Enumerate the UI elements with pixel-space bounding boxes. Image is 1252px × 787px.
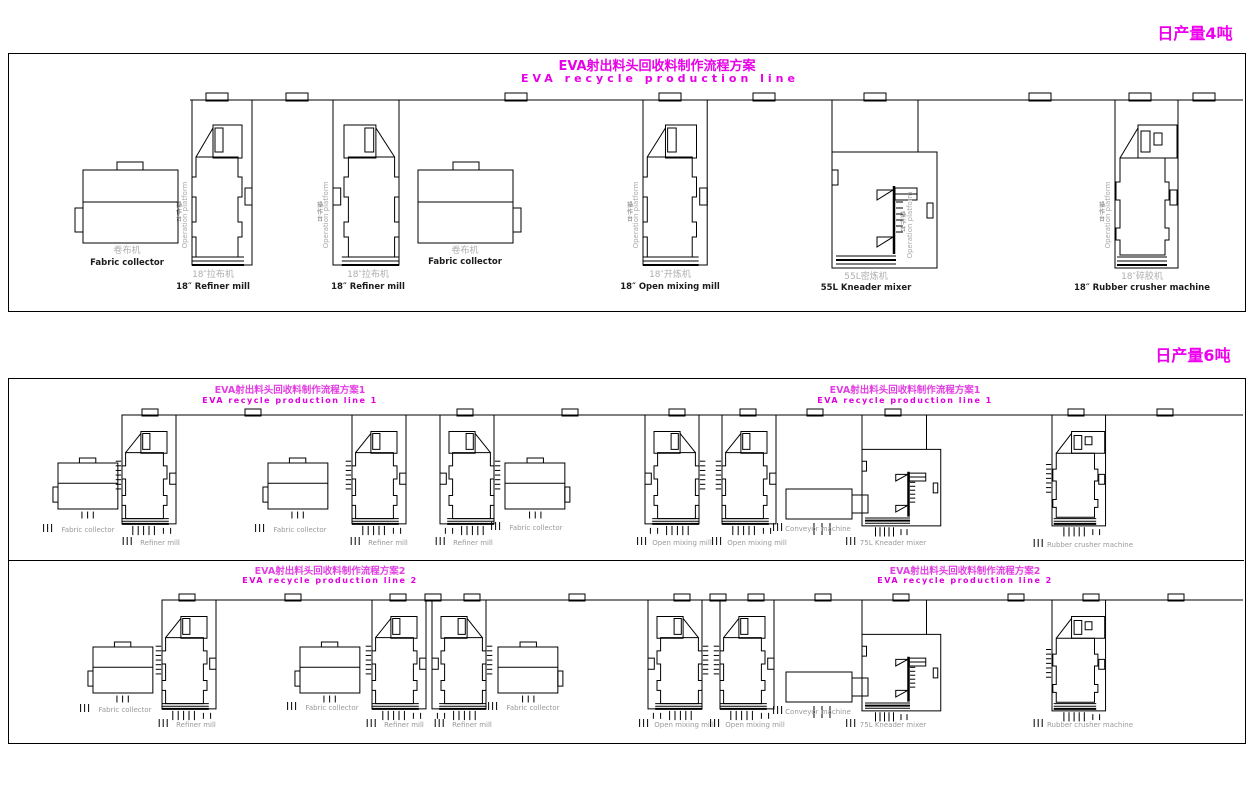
machine-mill-drawing <box>432 600 492 720</box>
machine-label-en: Rubber crusher machine <box>1047 541 1133 549</box>
operation-platform-label-en: Operation platform <box>322 181 330 248</box>
machine-label-en: Refiner mill <box>140 539 180 547</box>
machine-label-zh: 18″开炼机 <box>649 268 691 280</box>
machine-fabric-collector-drawing <box>53 458 118 518</box>
machine-mill-drawing <box>716 415 776 535</box>
machine-label-en: Fabric collector <box>98 706 151 714</box>
machine-label-zh: 18″拉布机 <box>347 268 389 280</box>
machine-label-en: Fabric collector <box>305 704 358 712</box>
machine-crusher-drawing <box>1046 600 1106 721</box>
machine-mill-drawing <box>648 600 708 720</box>
machine-label-zh: 18″拉布机 <box>192 268 234 280</box>
machine-label-en: Conveyor machine <box>785 708 851 716</box>
machine-label-en: Open mixing mill <box>725 721 785 729</box>
cad-drawing-canvas: 日产量4吨 EVA射出料头回收料制作流程方案 EVA recycle produ… <box>0 0 1252 787</box>
machine-crusher-drawing <box>1046 415 1106 536</box>
operation-platform-label-zh: 操作台 <box>627 201 633 223</box>
machine-label-en: 55L Kneader mixer <box>821 283 912 293</box>
machine-label-en: Fabric collector <box>506 704 559 712</box>
machine-mill-drawing <box>366 600 426 720</box>
machine-fabric-collector-drawing <box>418 162 521 243</box>
machine-label-en: Fabric collector <box>273 526 326 534</box>
operation-platform-label-zh: 操作台 <box>1099 201 1105 223</box>
machine-label-en: 18″ Open mixing mill <box>620 282 720 292</box>
machine-label-en: Refiner mill <box>384 721 424 729</box>
operation-platform-label-en: Operation platform <box>181 181 189 248</box>
machine-label-en: 18″ Refiner mill <box>331 282 405 292</box>
operation-platform-label-en: Operation platform <box>632 181 640 248</box>
machine-label-en: Refiner mill <box>453 539 493 547</box>
operation-platform-label-en: Operation platform <box>1104 181 1112 248</box>
machine-mill-drawing <box>333 100 399 265</box>
machine-kneader-drawing <box>862 415 941 536</box>
machine-label-en: Open mixing mill <box>727 539 787 547</box>
machine-crusher-drawing <box>1115 100 1178 268</box>
machine-mill-drawing <box>116 415 176 535</box>
machine-mill-drawing <box>346 415 406 535</box>
machine-label-en: Refiner mill <box>176 721 216 729</box>
machine-label-en: 75L Kneader mixer <box>860 721 927 729</box>
machine-label-en: Open mixing mill <box>652 539 712 547</box>
machine-label-zh: 卷布机 <box>451 244 478 256</box>
machine-mill-drawing <box>645 415 705 535</box>
operation-platform-label-en: Operation platform <box>906 191 914 258</box>
machine-fabric-collector-drawing <box>75 162 178 243</box>
machine-mill-drawing <box>440 415 500 535</box>
machine-label-zh: 55L密炼机 <box>844 270 887 282</box>
machine-label-en: Refiner mill <box>452 721 492 729</box>
machine-mill-drawing <box>192 100 252 265</box>
machines-diagram: 卷布机Fabric collector18″拉布机18″ Refiner mil… <box>0 0 1252 787</box>
machine-mill-drawing <box>714 600 774 720</box>
machine-fabric-collector-drawing <box>498 642 563 702</box>
machine-label-en: 75L Kneader mixer <box>860 539 927 547</box>
machine-label-en: Fabric collector <box>509 524 562 532</box>
machine-label-zh: 18″碎胶机 <box>1121 270 1163 282</box>
operation-platform-label-zh: 操作台 <box>176 201 182 223</box>
machine-label-en: Rubber crusher machine <box>1047 721 1133 729</box>
machine-label-en: Conveyor machine <box>785 525 851 533</box>
machine-label-en: Fabric collector <box>428 257 503 267</box>
machine-label-en: Fabric collector <box>61 526 114 534</box>
operation-platform-label-zh: 操作台 <box>317 201 323 223</box>
machine-label-en: Fabric collector <box>90 258 165 268</box>
machine-label-en: Open mixing mill <box>654 721 714 729</box>
machine-label-en: 18″ Rubber crusher machine <box>1074 283 1210 293</box>
machine-label-en: 18″ Refiner mill <box>176 282 250 292</box>
machine-kneader-drawing <box>832 100 937 268</box>
machine-mill-drawing <box>156 600 216 720</box>
machine-fabric-collector-drawing <box>295 642 360 702</box>
machine-fabric-collector-drawing <box>505 458 570 518</box>
machine-mill-drawing <box>643 100 707 265</box>
operation-platform-label-zh: 操作台 <box>900 211 906 233</box>
machine-fabric-collector-drawing <box>263 458 328 518</box>
machine-label-zh: 卷布机 <box>113 244 140 256</box>
machine-kneader-drawing <box>862 600 941 721</box>
machine-fabric-collector-drawing <box>88 642 153 702</box>
machine-label-en: Refiner mill <box>368 539 408 547</box>
